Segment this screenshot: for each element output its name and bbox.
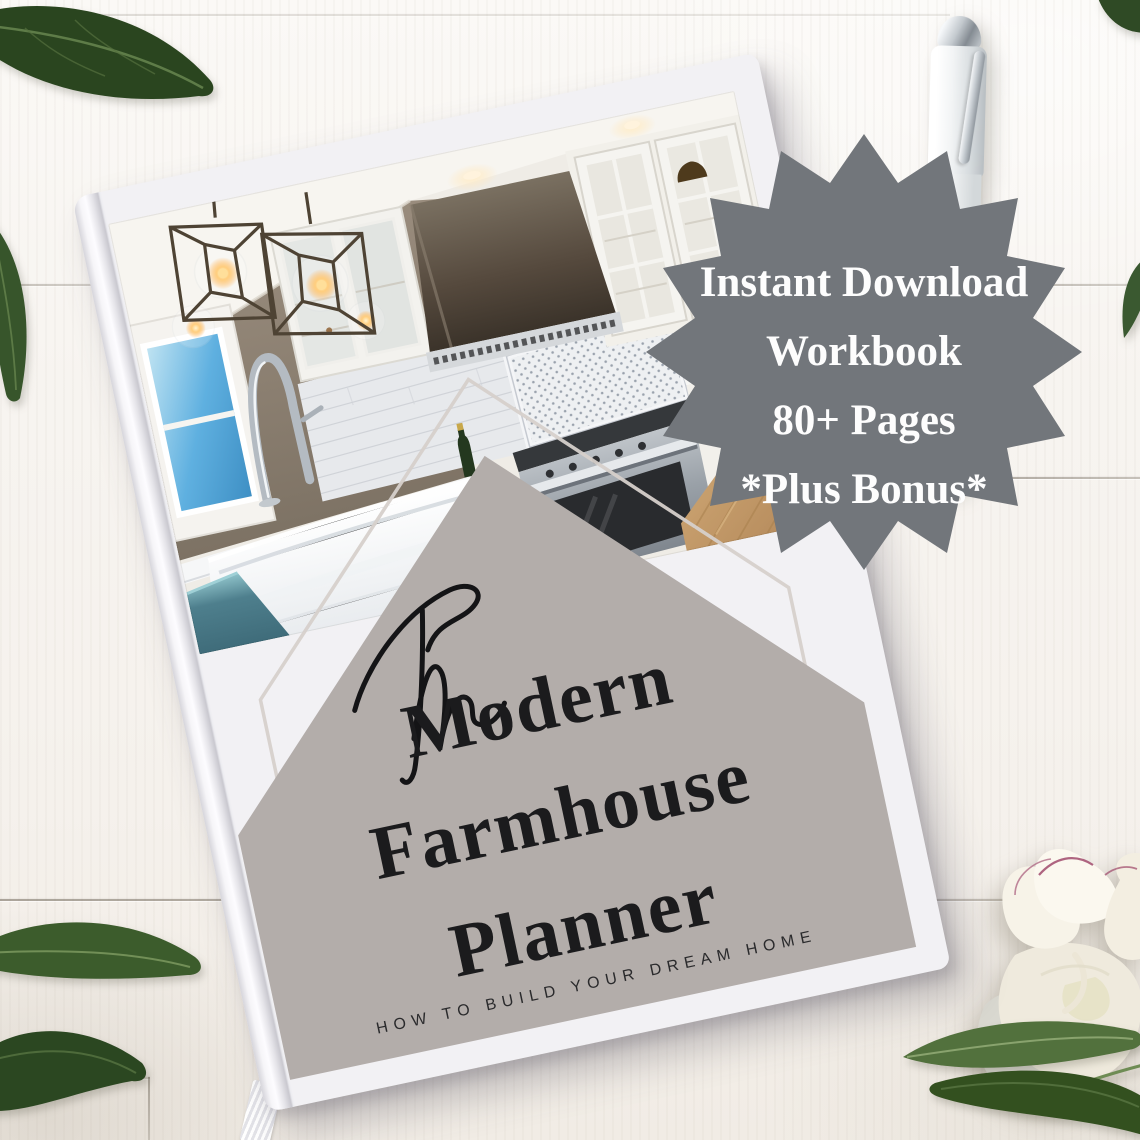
leaf-shape (0, 1031, 146, 1111)
leaves-bottom-left (0, 905, 230, 1140)
badge-text: Instant Download Workbook 80+ Pages *Plu… (646, 248, 1082, 524)
leaf-left-edge (0, 222, 46, 407)
badge-line: Instant Download (700, 248, 1029, 317)
leaves-bottom-right (895, 1005, 1140, 1140)
badge-line: *Plus Bonus* (740, 455, 987, 524)
leaf-right-edge (1114, 246, 1140, 346)
leaf-top-left (0, 0, 225, 153)
product-mockup-image: The Modern Farmhouse Planner HOW TO BUIL… (0, 0, 1140, 1140)
badge-line: 80+ Pages (772, 386, 955, 455)
leaf-shape (0, 222, 27, 401)
leaf-shape (903, 1021, 1140, 1067)
badge-line: Workbook (766, 317, 962, 386)
leaf-shape (1098, 0, 1140, 33)
leaf-shape (1122, 252, 1140, 338)
leaf-shape (929, 1071, 1140, 1135)
leaf-top-right (1096, 0, 1140, 52)
leaf-shape (0, 6, 213, 99)
